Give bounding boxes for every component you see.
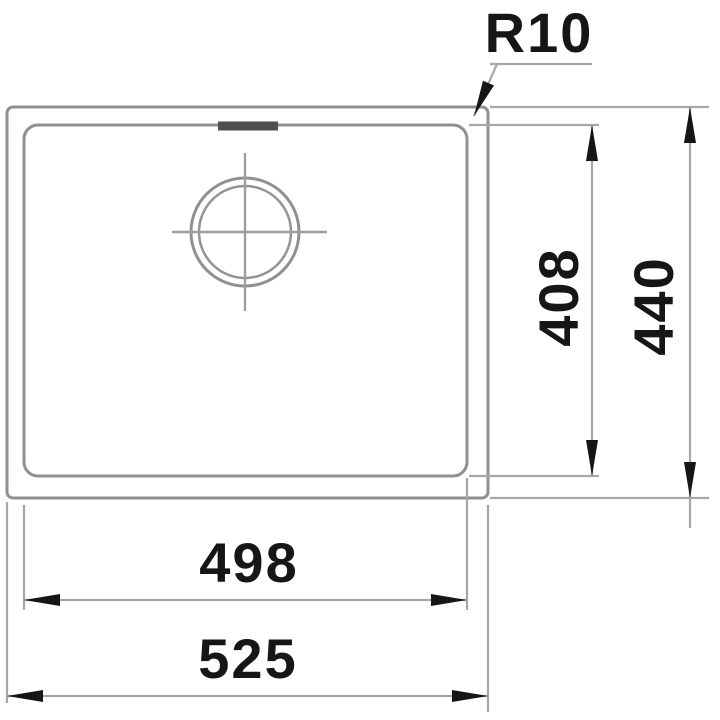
sink-outer-edge [7,107,488,498]
dim-corner-radius: R10 [474,1,593,116]
bowl-depth-arrow-up-icon [586,125,598,161]
overall-depth-arrow-up-icon [684,107,696,143]
overall-width-arrow-left-icon [7,690,43,702]
bowl-depth-label: 408 [527,247,590,346]
overflow-mark [218,122,278,131]
bowl-width-arrow-right-icon [431,594,467,606]
overall-depth-label: 440 [622,256,685,355]
dim-overall-depth: 440 [490,107,709,528]
overall-width-label: 525 [198,627,297,690]
sink-outline [7,107,488,498]
overall-depth-arrow-down-icon [684,462,696,498]
bowl-width-arrow-left-icon [24,594,60,606]
sink-technical-drawing: R10 408 440 498 [0,0,720,720]
corner-radius-label: R10 [485,1,594,64]
drawing-svg: R10 408 440 498 [0,0,720,720]
drain-symbol [172,153,327,311]
bowl-width-label: 498 [199,531,298,594]
radius-arrow-icon [474,81,494,116]
overall-width-arrow-right-icon [452,690,488,702]
bowl-depth-arrow-down-icon [586,440,598,476]
